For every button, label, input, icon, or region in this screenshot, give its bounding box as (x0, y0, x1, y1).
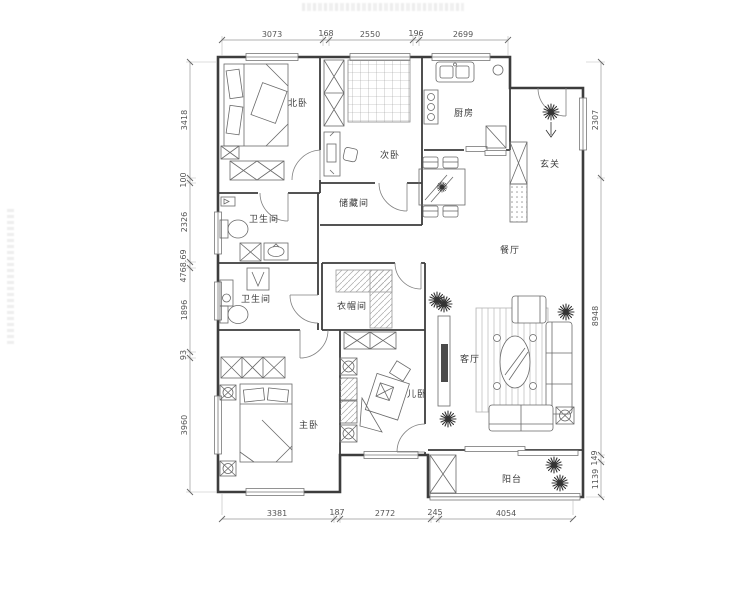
dim-right-3: 149 (590, 450, 599, 465)
dim-bottom-4: 245 (427, 508, 442, 517)
floor-plan: 3073 168 2550 196 2699 3418 100 2326 476… (0, 0, 740, 602)
dim-top-3: 2550 (360, 30, 380, 39)
dim-right-4: 1139 (591, 469, 600, 489)
cabinet-strip-icon-kids (340, 358, 357, 442)
fridge-icon-kitchen (486, 126, 506, 148)
dim-left-4: 4768.69 (179, 249, 188, 282)
dim-right-1: 2307 (591, 110, 600, 130)
room-label-bath2: 卫生间 (241, 293, 271, 305)
stove-icon-kitchen (424, 90, 438, 124)
plant-icon (546, 457, 562, 473)
dim-left-6: 93 (179, 350, 188, 360)
vent-icon-bath1 (221, 197, 235, 206)
room-label-master-bedroom: 主卧 (299, 419, 319, 431)
room-label-north-bedroom: 北卧 (288, 97, 308, 109)
plant-icon (543, 104, 559, 120)
washbasin-icon-bath1 (264, 243, 288, 260)
room-label-second-bedroom: 次卧 (380, 149, 400, 161)
kitchen-drain-icon (493, 65, 503, 75)
dim-left-7: 3960 (180, 415, 189, 435)
room-label-kitchen: 厨房 (454, 107, 474, 119)
nightstand-icon-master-2 (220, 461, 236, 476)
room-label-dining: 餐厅 (500, 244, 520, 256)
wardrobe-icon-north-bedroom (230, 161, 284, 180)
plant-icon (552, 475, 568, 491)
balcony-column (430, 455, 456, 493)
plant-icon (440, 411, 456, 427)
floor-plan-drawing: 3073 168 2550 196 2699 3418 100 2326 476… (0, 0, 740, 602)
plant-icon (558, 304, 574, 320)
tatami-mat-icon (348, 60, 410, 122)
washer-icon-bath2 (247, 268, 269, 290)
dim-top-4: 196 (408, 29, 423, 38)
room-label-bath1: 卫生间 (249, 213, 279, 225)
shoe-cabinet-icon-entry (510, 142, 527, 222)
wardrobe-icon-master (221, 357, 285, 378)
dim-bottom-2: 187 (329, 508, 344, 517)
dim-left-3: 2326 (180, 212, 189, 232)
dim-right-2: 8948 (591, 306, 600, 326)
bed-icon-kids (360, 361, 410, 432)
nightstand-icon-master-1 (220, 385, 236, 400)
dim-bottom-5: 4054 (496, 509, 516, 518)
bed-icon-north-bedroom (224, 64, 288, 146)
plant-icon (436, 296, 452, 312)
wardrobe-icon-kids (344, 332, 396, 349)
closet-icon-second-bedroom (324, 60, 344, 126)
dim-top-2: 168 (318, 29, 333, 38)
room-label-cloakroom: 衣帽间 (337, 300, 367, 312)
dim-top-5: 2699 (453, 30, 473, 39)
shower-icon-bath1 (240, 243, 261, 261)
desk-icon-second-bedroom (324, 132, 358, 176)
plant-icon (437, 182, 447, 192)
sink-icon-kitchen (436, 62, 474, 82)
dim-bottom-3: 2772 (375, 509, 395, 518)
dim-left-2: 100 (179, 172, 188, 187)
toilet-icon-bath1 (220, 220, 248, 238)
toilet-icon-bath2 (220, 306, 248, 324)
dim-top-1: 3073 (262, 30, 282, 39)
room-label-living: 客厅 (460, 353, 480, 365)
room-label-kids-bedroom: 儿卧 (407, 388, 427, 400)
dim-left-5: 1896 (180, 300, 189, 320)
room-label-entry: 玄关 (540, 158, 560, 170)
dim-bottom-1: 3381 (267, 509, 287, 518)
tv-cabinet-icon (438, 316, 450, 406)
bed-icon-master (240, 384, 292, 462)
entry-arrow-icon (546, 122, 556, 137)
dim-left-1: 3418 (180, 110, 189, 130)
room-label-storage: 储藏间 (339, 197, 369, 209)
washbasin-icon-bath2 (220, 280, 233, 306)
room-label-balcony: 阳台 (502, 473, 522, 485)
nightstand-icon (221, 146, 239, 159)
wardrobe-icon-cloakroom (336, 270, 392, 328)
